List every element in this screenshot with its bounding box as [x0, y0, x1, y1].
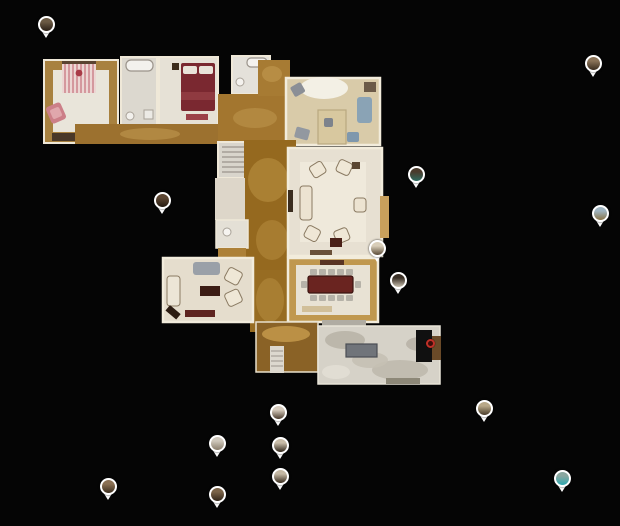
pano-pin[interactable] [585, 55, 602, 78]
pano-thumbnail [369, 240, 386, 257]
pano-pin[interactable] [270, 404, 287, 427]
pano-pin[interactable] [592, 205, 609, 228]
floorplan-3d-view[interactable] [0, 0, 620, 526]
pano-pin[interactable] [408, 166, 425, 189]
pano-thumbnail [209, 486, 226, 503]
pano-thumbnail [209, 435, 226, 452]
pins-layer [0, 0, 620, 526]
pano-thumbnail [476, 400, 493, 417]
pano-pin[interactable] [476, 400, 493, 423]
pano-thumbnail [390, 272, 407, 289]
pano-thumbnail [38, 16, 55, 33]
pano-pin[interactable] [209, 435, 226, 458]
pano-pin[interactable] [100, 478, 117, 501]
pano-pin[interactable] [272, 437, 289, 460]
pano-thumbnail [154, 192, 171, 209]
pano-thumbnail [554, 470, 571, 487]
pano-pin[interactable] [38, 16, 55, 39]
pano-pin[interactable] [272, 468, 289, 491]
pano-thumbnail [270, 404, 287, 421]
pano-thumbnail [592, 205, 609, 222]
pano-pin[interactable] [209, 486, 226, 509]
pano-thumbnail [408, 166, 425, 183]
pano-pin[interactable] [154, 192, 171, 215]
pano-thumbnail [585, 55, 602, 72]
pano-thumbnail [100, 478, 117, 495]
pano-thumbnail [272, 437, 289, 454]
view-point-marker[interactable] [426, 339, 435, 348]
pano-pin[interactable] [369, 240, 386, 263]
pano-pin[interactable] [390, 272, 407, 295]
pano-thumbnail [272, 468, 289, 485]
pano-pin[interactable] [554, 470, 571, 493]
